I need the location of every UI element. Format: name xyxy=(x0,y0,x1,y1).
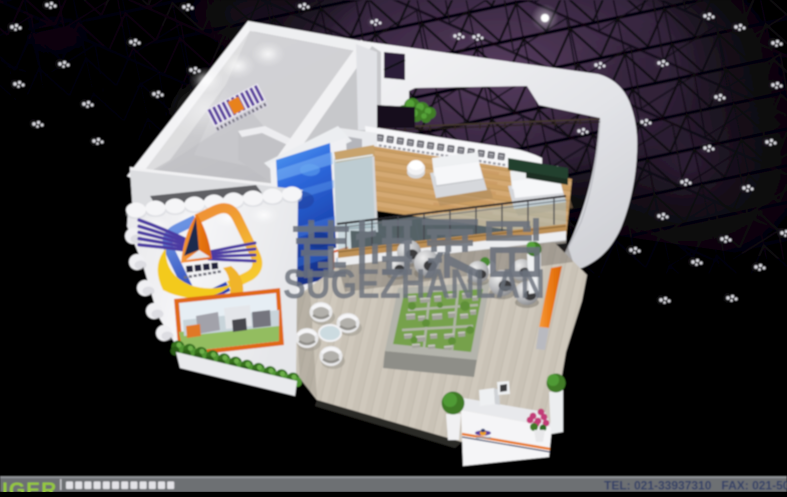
svg-text:SUGEZHANLAN: SUGEZHANLAN xyxy=(283,260,545,307)
svg-text:TEL: 021-33937310 FAX: 021-5: TEL: 021-33937310 FAX: 021-50345678 xyxy=(604,479,787,493)
svg-text:IGER: IGER xyxy=(2,479,57,492)
